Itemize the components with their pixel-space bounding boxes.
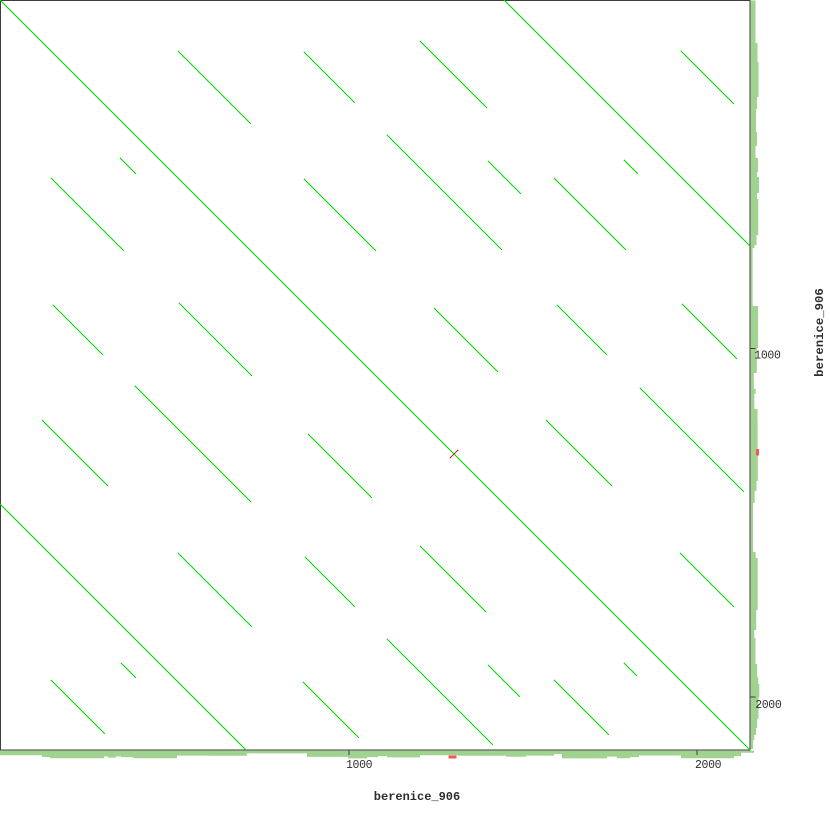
- svg-text:berenice_906: berenice_906: [813, 288, 827, 377]
- svg-text:2000: 2000: [695, 759, 722, 772]
- svg-text:1000: 1000: [754, 349, 781, 362]
- svg-text:2000: 2000: [755, 699, 782, 712]
- svg-text:berenice_906: berenice_906: [374, 790, 460, 804]
- svg-text:1000: 1000: [346, 759, 373, 772]
